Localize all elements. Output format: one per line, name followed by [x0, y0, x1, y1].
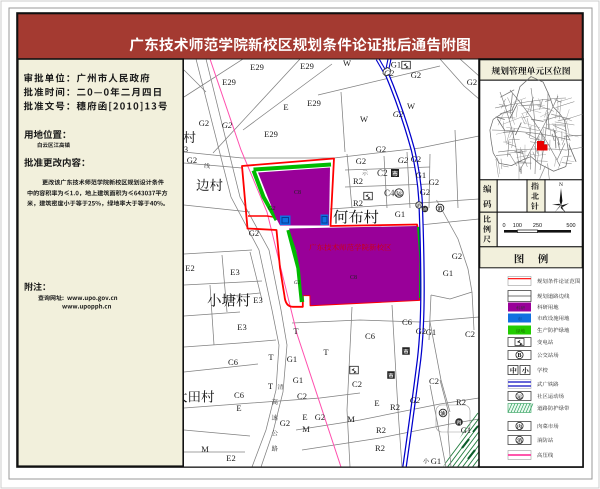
svg-text:3: 3	[184, 145, 188, 154]
svg-text:G1: G1	[293, 375, 303, 385]
svg-text:C6: C6	[228, 357, 238, 367]
svg-text:100: 100	[513, 223, 522, 229]
svg-text:E3: E3	[230, 267, 239, 277]
svg-text:W: W	[407, 101, 415, 111]
svg-text:G2: G2	[187, 155, 197, 165]
svg-text:C2: C2	[465, 329, 475, 339]
svg-text:T: T	[268, 352, 274, 362]
svg-text:G1: G1	[443, 268, 453, 278]
svg-text:T: T	[268, 381, 274, 391]
svg-text:G1: G1	[395, 209, 405, 219]
svg-text:E: E	[302, 412, 307, 422]
svg-text:W: W	[360, 114, 368, 124]
svg-text:G2: G2	[315, 412, 325, 422]
svg-text:R2: R2	[353, 198, 363, 208]
svg-text:G1: G1	[461, 425, 471, 435]
svg-text:G2: G2	[467, 77, 477, 87]
svg-text:E2: E2	[185, 263, 194, 273]
svg-text:G1: G1	[431, 456, 441, 466]
svg-text:E: E	[283, 102, 288, 112]
svg-text:C6: C6	[365, 331, 375, 341]
svg-text:N: N	[559, 182, 563, 188]
svg-text:G2: G2	[429, 177, 439, 187]
svg-text:E: E	[236, 403, 241, 413]
svg-text:R2: R2	[456, 397, 466, 407]
svg-text:T: T	[293, 326, 299, 336]
svg-text:E29: E29	[307, 98, 321, 108]
svg-text:E3: E3	[253, 295, 262, 305]
svg-text:G2: G2	[452, 251, 462, 261]
svg-text:E3: E3	[237, 322, 246, 332]
svg-text:C2: C2	[352, 379, 362, 389]
svg-text:C2: C2	[429, 376, 439, 386]
svg-text:C2: C2	[297, 391, 307, 401]
svg-text:G2: G2	[249, 228, 259, 238]
svg-text:M: M	[302, 424, 310, 434]
svg-text:E: E	[374, 398, 379, 408]
svg-text:G2: G2	[222, 120, 233, 130]
svg-text:M: M	[347, 414, 355, 424]
svg-text:M: M	[201, 444, 209, 454]
svg-text:R2: R2	[376, 425, 386, 435]
svg-text:T: T	[323, 347, 329, 357]
svg-text:G2: G2	[376, 144, 386, 154]
svg-text:G1: G1	[287, 354, 297, 364]
svg-text:B: B	[517, 353, 521, 359]
svg-text:G1: G1	[416, 170, 426, 180]
svg-text:G2: G2	[294, 281, 301, 286]
svg-text:G2: G2	[410, 395, 421, 405]
svg-text:W: W	[343, 58, 351, 68]
svg-text:E29: E29	[264, 129, 278, 139]
svg-text:G2: G2	[199, 118, 209, 128]
svg-text:E29: E29	[250, 62, 264, 72]
svg-text:R2: R2	[390, 402, 400, 412]
svg-text:G2: G2	[411, 154, 421, 164]
svg-text:G2: G2	[416, 326, 426, 336]
svg-text:G2: G2	[420, 187, 430, 197]
svg-text:C8: C8	[294, 190, 301, 196]
svg-text:G1: G1	[426, 327, 436, 337]
svg-text:G2: G2	[356, 156, 366, 166]
svg-text:G2: G2	[398, 155, 409, 165]
svg-text:E2: E2	[226, 453, 235, 463]
svg-text:G2: G2	[268, 206, 275, 212]
svg-text:R2: R2	[353, 176, 363, 186]
svg-text:C6: C6	[402, 317, 412, 327]
svg-text:E29: E29	[300, 61, 314, 71]
svg-text:E29: E29	[222, 77, 236, 87]
svg-text:R2: R2	[375, 443, 385, 453]
svg-text:250: 250	[533, 223, 542, 229]
svg-text:C6: C6	[234, 390, 244, 400]
svg-text:500: 500	[566, 223, 575, 229]
svg-text:C2: C2	[384, 68, 395, 78]
svg-text:G2: G2	[280, 418, 290, 428]
svg-text:0: 0	[502, 223, 505, 229]
svg-text:C8: C8	[350, 275, 357, 281]
svg-text:G1: G1	[391, 60, 401, 70]
svg-text:G2: G2	[393, 109, 404, 119]
svg-text:G2: G2	[411, 70, 421, 80]
